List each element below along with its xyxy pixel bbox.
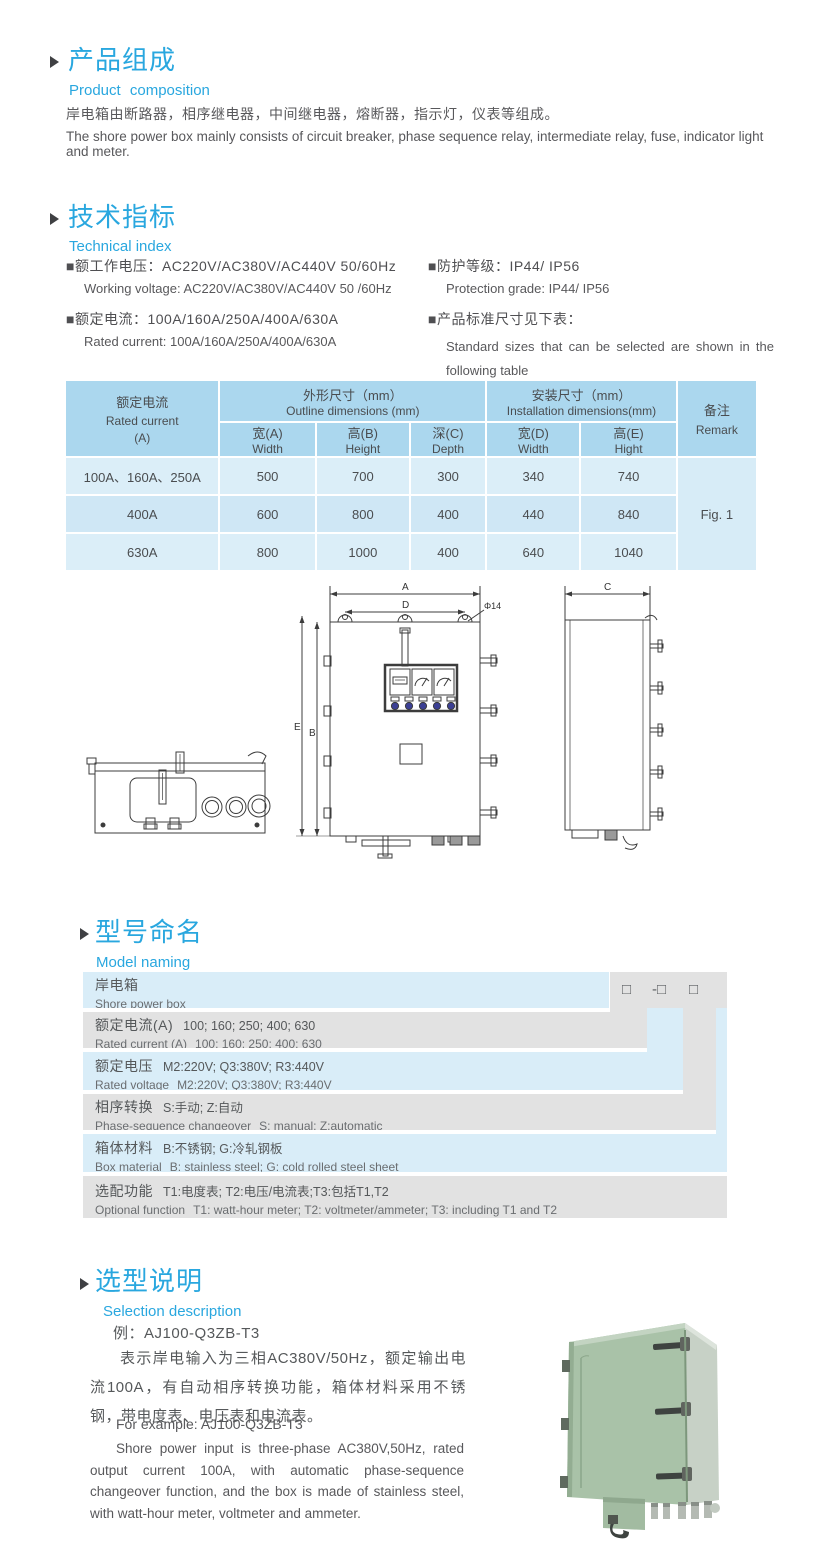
table-row: 100A、160A、250A 500 700 300 340 740 Fig. …: [66, 458, 756, 494]
dim-label-e: E: [294, 722, 301, 733]
subheader-width-a: 宽(A)Width: [220, 423, 314, 456]
naming-row-rated-voltage: 额定电压M2:220V; Q3:380V; R3:440V Rated volt…: [83, 1052, 683, 1090]
section-arrow-icon: [50, 56, 59, 68]
spec-cn: ■额工作电压：AC220V/AC380V/AC440V 50/60Hz: [66, 259, 396, 273]
naming-row-rated-current: 额定电流(A)100; 160; 250; 400; 630 Rated cur…: [83, 1012, 647, 1048]
selection-desc-en: Shore power input is three-phase AC380V,…: [90, 1438, 464, 1524]
spec-rated-current: ■额定电流：100A/160A/250A/400A/630A Rated cur…: [66, 312, 339, 348]
selection-title-en: Selection description: [103, 1303, 241, 1320]
table-row: 400A 600 800 400 440 840: [66, 496, 756, 532]
selection-example-en: For example: AJ100-Q3ZB-T3: [116, 1416, 303, 1432]
composition-body-cn: 岸电箱由断路器，相序继电器，中间继电器，熔断器，指示灯，仪表等组成。: [66, 104, 786, 124]
control-panel: [385, 665, 457, 711]
front-view: A D Φ14 E B: [294, 582, 501, 858]
spec-en: Standard sizes that can be selected are …: [446, 335, 774, 383]
naming-code-box-3: □: [689, 981, 698, 998]
selection-example-cn: 例：AJ100-Q3ZB-T3: [113, 1322, 260, 1343]
remark-value: Fig. 1: [678, 458, 756, 570]
naming-title-en: Model naming: [96, 954, 190, 971]
spec-cn: ■额定电流：100A/160A/250A/400A/630A: [66, 312, 339, 326]
side-view: C: [565, 582, 663, 849]
catalog-page: 产品组成 Product composition 岸电箱由断路器，相序继电器，中…: [0, 0, 830, 1568]
install-cn: 安装尺寸（mm）: [487, 385, 676, 404]
table-row: 630A 800 1000 400 640 1040: [66, 534, 756, 570]
technical-title-en: Technical index: [69, 238, 172, 255]
naming-code-box-1: □: [622, 981, 631, 998]
cable-glands: [651, 1501, 720, 1519]
nameplate: [400, 744, 422, 764]
spec-working-voltage: ■额工作电压：AC220V/AC380V/AC440V 50/60Hz Work…: [66, 259, 396, 295]
subheader-depth-c: 深(C)Depth: [411, 423, 485, 456]
outline-cn: 外形尺寸（mm）: [220, 385, 485, 404]
spec-en: Protection grade: IP44/ IP56: [446, 282, 609, 295]
naming-title-cn: 型号命名: [95, 919, 203, 945]
technical-drawing: A D Φ14 E B: [60, 578, 780, 893]
dimensions-table: 额定电流 Rated current (A) 外形尺寸（mm） Outline …: [64, 379, 758, 572]
naming-code-box-2: -□: [652, 981, 666, 998]
dim-label-b: B: [309, 728, 316, 739]
latch-icons: [480, 655, 497, 818]
section-arrow-icon: [50, 213, 59, 225]
dim-label-d: D: [402, 600, 409, 611]
install-en: Installation dimensions(mm): [487, 404, 676, 418]
rated-current-cn: 额定电流: [66, 392, 218, 411]
naming-row-optional-function: 选配功能T1:电度表; T2:电压/电流表;T3:包括T1,T2 Optiona…: [83, 1176, 727, 1218]
remark-header: 备注 Remark: [678, 381, 756, 456]
spec-cn: ■防护等级：IP44/ IP56: [428, 259, 609, 273]
spec-en: Rated current: 100A/160A/250A/400A/630A: [84, 335, 339, 348]
section-arrow-icon: [80, 1278, 89, 1290]
outline-en: Outline dimensions (mm): [220, 404, 485, 418]
naming-row-phase-sequence: 相序转换S:手动; Z:自动 Phase-sequence changeover…: [83, 1094, 716, 1130]
spec-en: Working voltage: AC220V/AC380V/AC440V 50…: [84, 282, 396, 295]
remark-en: Remark: [678, 423, 756, 437]
col-rated-current-header: 额定电流 Rated current (A): [66, 381, 218, 456]
selection-title-cn: 选型说明: [95, 1268, 203, 1294]
spec-protection-grade: ■防护等级：IP44/ IP56 Protection grade: IP44/…: [428, 259, 609, 295]
spec-standard-sizes: ■产品标准尺寸见下表： Standard sizes that can be s…: [428, 312, 774, 383]
install-dims-header: 安装尺寸（mm） Installation dimensions(mm): [487, 381, 676, 421]
spec-cn: ■产品标准尺寸见下表：: [428, 312, 774, 326]
rated-current-en: Rated current: [66, 414, 218, 428]
remark-cn: 备注: [678, 400, 756, 419]
rated-current-unit: (A): [66, 431, 218, 445]
latch-icons: [650, 640, 663, 820]
composition-title-cn: 产品组成: [68, 47, 176, 73]
subheader-width-d: 宽(D)Width: [487, 423, 579, 456]
composition-body-en: The shore power box mainly consists of c…: [66, 129, 786, 159]
outline-dims-header: 外形尺寸（mm） Outline dimensions (mm): [220, 381, 485, 421]
dim-label-phi14: Φ14: [484, 601, 501, 611]
dim-label-c: C: [604, 582, 611, 593]
product-photo: [545, 1290, 830, 1568]
bottom-view: [87, 752, 270, 833]
subheader-height-b: 高(B)Height: [317, 423, 409, 456]
technical-title-cn: 技术指标: [68, 204, 176, 230]
naming-row-shore-power-box: 岸电箱 Shore power box: [83, 972, 609, 1008]
section-arrow-icon: [80, 928, 89, 940]
dim-label-a: A: [402, 582, 409, 593]
subheader-height-e: 高(E)Hight: [581, 423, 675, 456]
naming-row-box-material: 箱体材料B:不锈钢; G:冷轧钢板 Box materialB: stainle…: [83, 1134, 727, 1172]
composition-title-en: Product composition: [69, 82, 210, 99]
indicator-lights: [391, 697, 455, 710]
